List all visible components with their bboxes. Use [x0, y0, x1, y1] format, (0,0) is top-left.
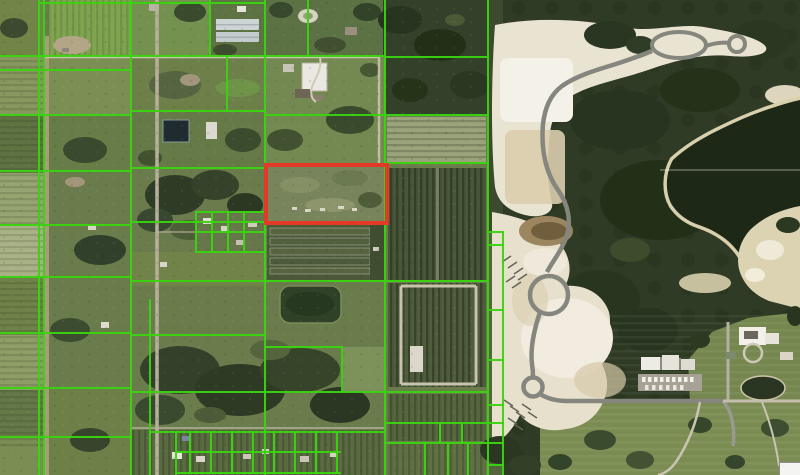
map-control-partial[interactable]: [779, 462, 800, 475]
construction-area: [480, 0, 800, 475]
aerial-basemap: [0, 0, 800, 475]
map-viewport[interactable]: [0, 0, 800, 475]
